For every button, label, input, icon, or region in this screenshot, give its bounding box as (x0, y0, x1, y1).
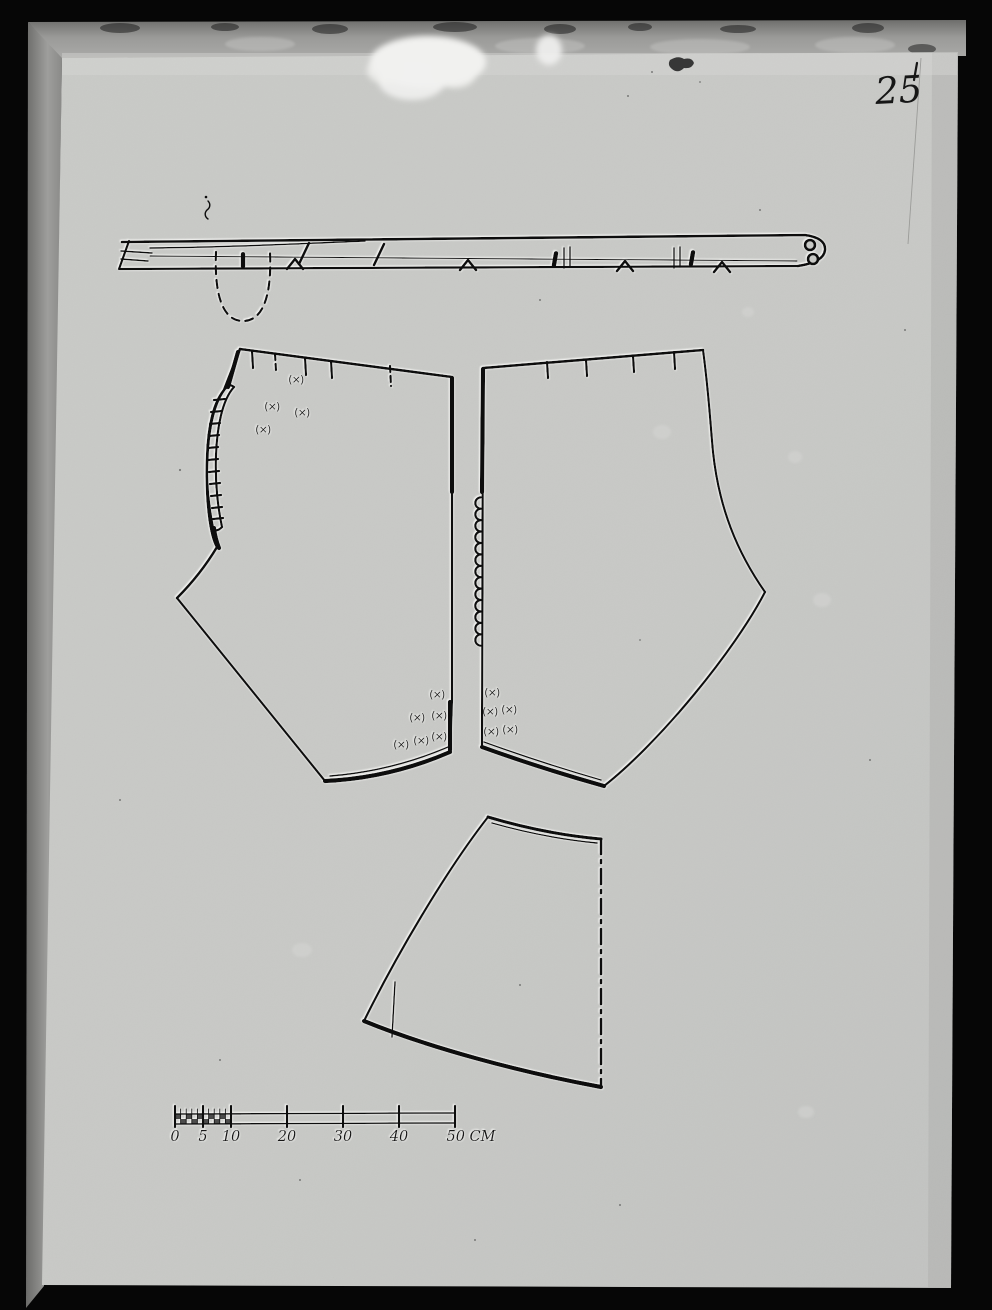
scale-label: 50 CM (446, 1129, 496, 1145)
cross-mark: (×) (431, 731, 447, 743)
cross-mark: (×) (393, 739, 409, 751)
cross-mark: (×) (482, 706, 498, 718)
scale-checker-cell (197, 1114, 203, 1119)
edge-notch-tick (633, 356, 634, 372)
scale-label: 40 (389, 1129, 408, 1145)
scale-label: 20 (277, 1129, 296, 1145)
edge-notch-tick (331, 361, 332, 378)
buttonhole-slot (241, 252, 245, 269)
scale-checker-cell (175, 1114, 181, 1119)
cross-mark: (×) (431, 710, 447, 722)
scale-label: 10 (222, 1129, 240, 1145)
button (808, 254, 818, 264)
scale-checker-cell (181, 1119, 187, 1124)
cross-mark: (×) (429, 689, 445, 701)
edge-notch-tick (252, 351, 253, 368)
scale-checker-cell (220, 1114, 226, 1119)
cross-mark: (×) (288, 374, 304, 386)
cross-mark: (×) (294, 407, 310, 419)
edge-notch-tick (674, 352, 675, 369)
cross-mark: (×) (409, 712, 425, 724)
edge-notch-tick (586, 360, 587, 376)
scale-checker-cell (203, 1119, 209, 1124)
scale-checker-cell (209, 1114, 215, 1119)
scale-checker-cell (214, 1119, 220, 1124)
scale-label: 0 (170, 1129, 179, 1145)
cross-mark: (×) (413, 735, 429, 747)
right-piece-left-edge-thick (482, 369, 483, 492)
cross-mark: (×) (255, 424, 271, 436)
cross-mark: (×) (264, 401, 280, 413)
cross-mark: (×) (501, 704, 517, 716)
photo-stage: (×)(×)(×)(×)(×)(×)(×)(×)(×)(×)(×)(×)(×)(… (0, 0, 992, 1310)
cross-mark: (×) (484, 687, 500, 699)
cross-mark: (×) (483, 726, 499, 738)
button (805, 240, 815, 250)
pattern-diagram-photo: (×)(×)(×)(×)(×)(×)(×)(×)(×)(×)(×)(×)(×)(… (0, 0, 992, 1310)
scale-checker-cell (192, 1119, 198, 1124)
edge-notch-tick (305, 358, 306, 375)
scale-label: 5 (198, 1129, 207, 1145)
scale-checker-cell (225, 1119, 231, 1124)
cross-mark: (×) (502, 724, 518, 736)
scale-label: 30 (334, 1129, 352, 1145)
frame-top-edge (28, 20, 966, 58)
scale-checker-cell (186, 1114, 192, 1119)
edge-notch-tick (547, 362, 548, 378)
